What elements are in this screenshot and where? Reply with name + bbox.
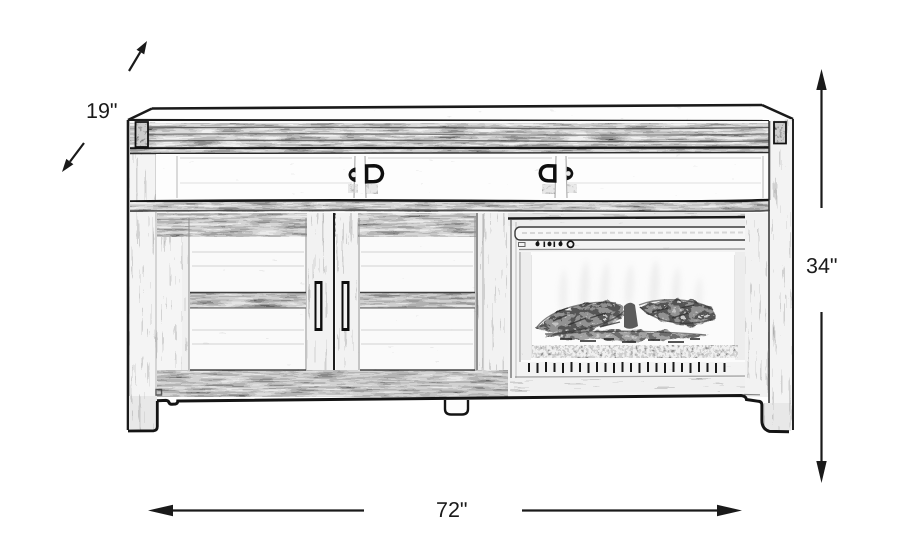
svg-text:34": 34" — [806, 254, 838, 278]
svg-text:72": 72" — [436, 498, 468, 522]
svg-text:19": 19" — [86, 99, 118, 123]
